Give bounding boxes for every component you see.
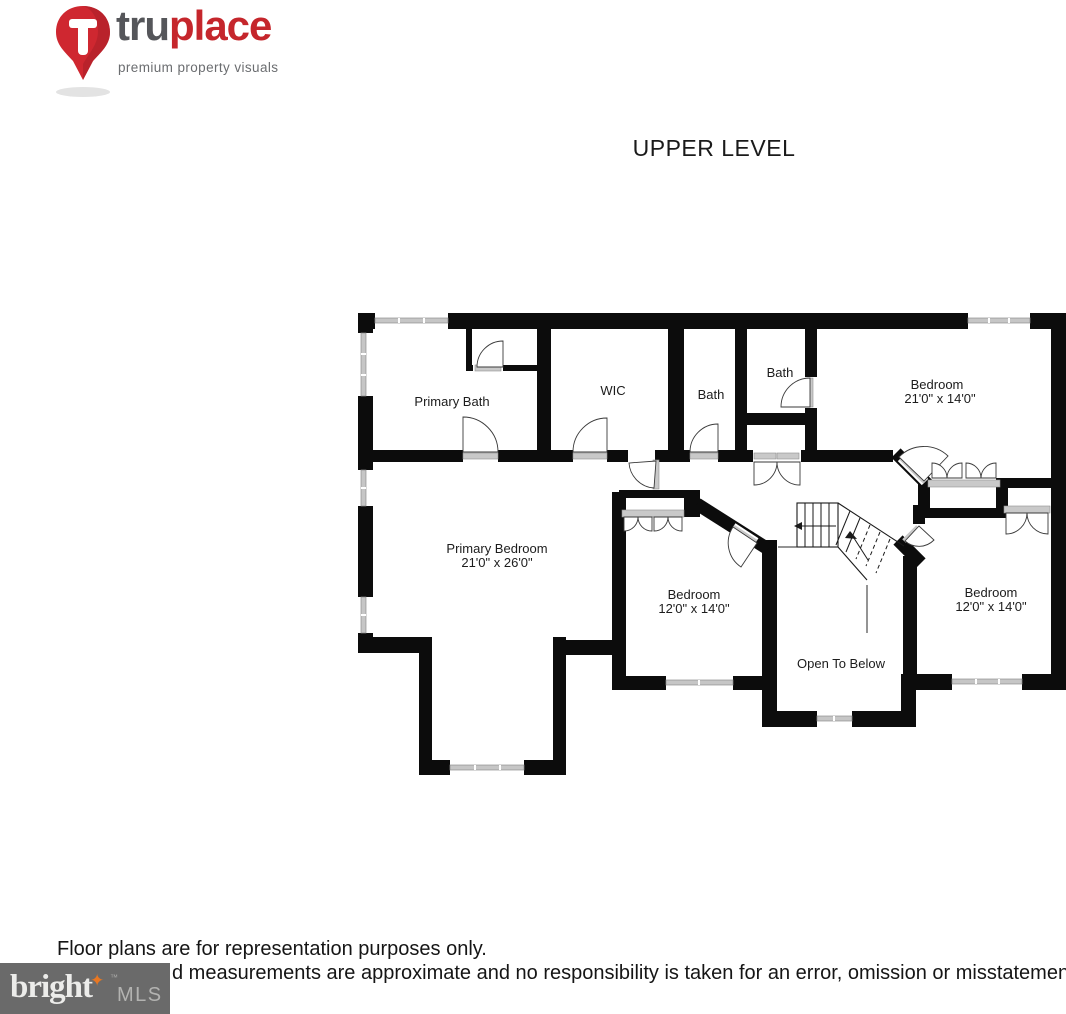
truplace-word-place: place <box>169 2 271 49</box>
bright-mls-star-icon: ✦ <box>90 971 104 991</box>
stair-arrow-left <box>794 522 802 530</box>
room-label-open-to-below: Open To Below <box>797 656 886 671</box>
room-label-bedroom-left: Bedroom <box>668 587 721 602</box>
truplace-logo: truplace premium property visuals <box>52 2 372 102</box>
room-dims-bedroom-right: 12'0" x 14'0" <box>955 599 1027 614</box>
room-label-bedroom-right: Bedroom <box>965 585 1018 600</box>
room-label-bath-1: Bath <box>698 387 725 402</box>
truplace-pin-icon <box>52 4 114 98</box>
room-dims-primary-bedroom: 21'0" x 26'0" <box>461 555 533 570</box>
truplace-wordmark: truplace <box>116 4 271 48</box>
room-dims-bedroom-21x14: 21'0" x 14'0" <box>904 391 976 406</box>
bright-mls-trademark: ™ <box>110 973 118 982</box>
stair-arrow-up <box>845 531 857 539</box>
page-title: UPPER LEVEL <box>564 135 864 162</box>
room-label-bedroom-21x14: Bedroom <box>911 377 964 392</box>
disclaimer-line-1: Floor plans are for representation purpo… <box>57 938 487 961</box>
room-dims-bedroom-left: 12'0" x 14'0" <box>658 601 730 616</box>
floor-plan: Primary Bath WIC Bath Bath Bedroom 21'0"… <box>350 300 1066 784</box>
staircase <box>778 503 904 633</box>
room-label-primary-bedroom: Primary Bedroom <box>446 541 547 556</box>
disclaimer-line-2: d measurements are approximate and no re… <box>172 962 1066 985</box>
floor-plan-svg: Primary Bath WIC Bath Bath Bedroom 21'0"… <box>350 300 1066 784</box>
room-label-bath-2: Bath <box>767 365 794 380</box>
truplace-word-tru: tru <box>116 2 169 49</box>
bright-mls-logo: bright ✦ ™ MLS <box>0 963 170 1014</box>
bright-mls-wordmark: bright <box>10 969 92 1006</box>
truplace-tagline: premium property visuals <box>118 60 278 75</box>
bright-mls-mls-text: MLS <box>117 984 163 1007</box>
room-label-primary-bath: Primary Bath <box>414 394 489 409</box>
room-label-wic: WIC <box>600 383 625 398</box>
